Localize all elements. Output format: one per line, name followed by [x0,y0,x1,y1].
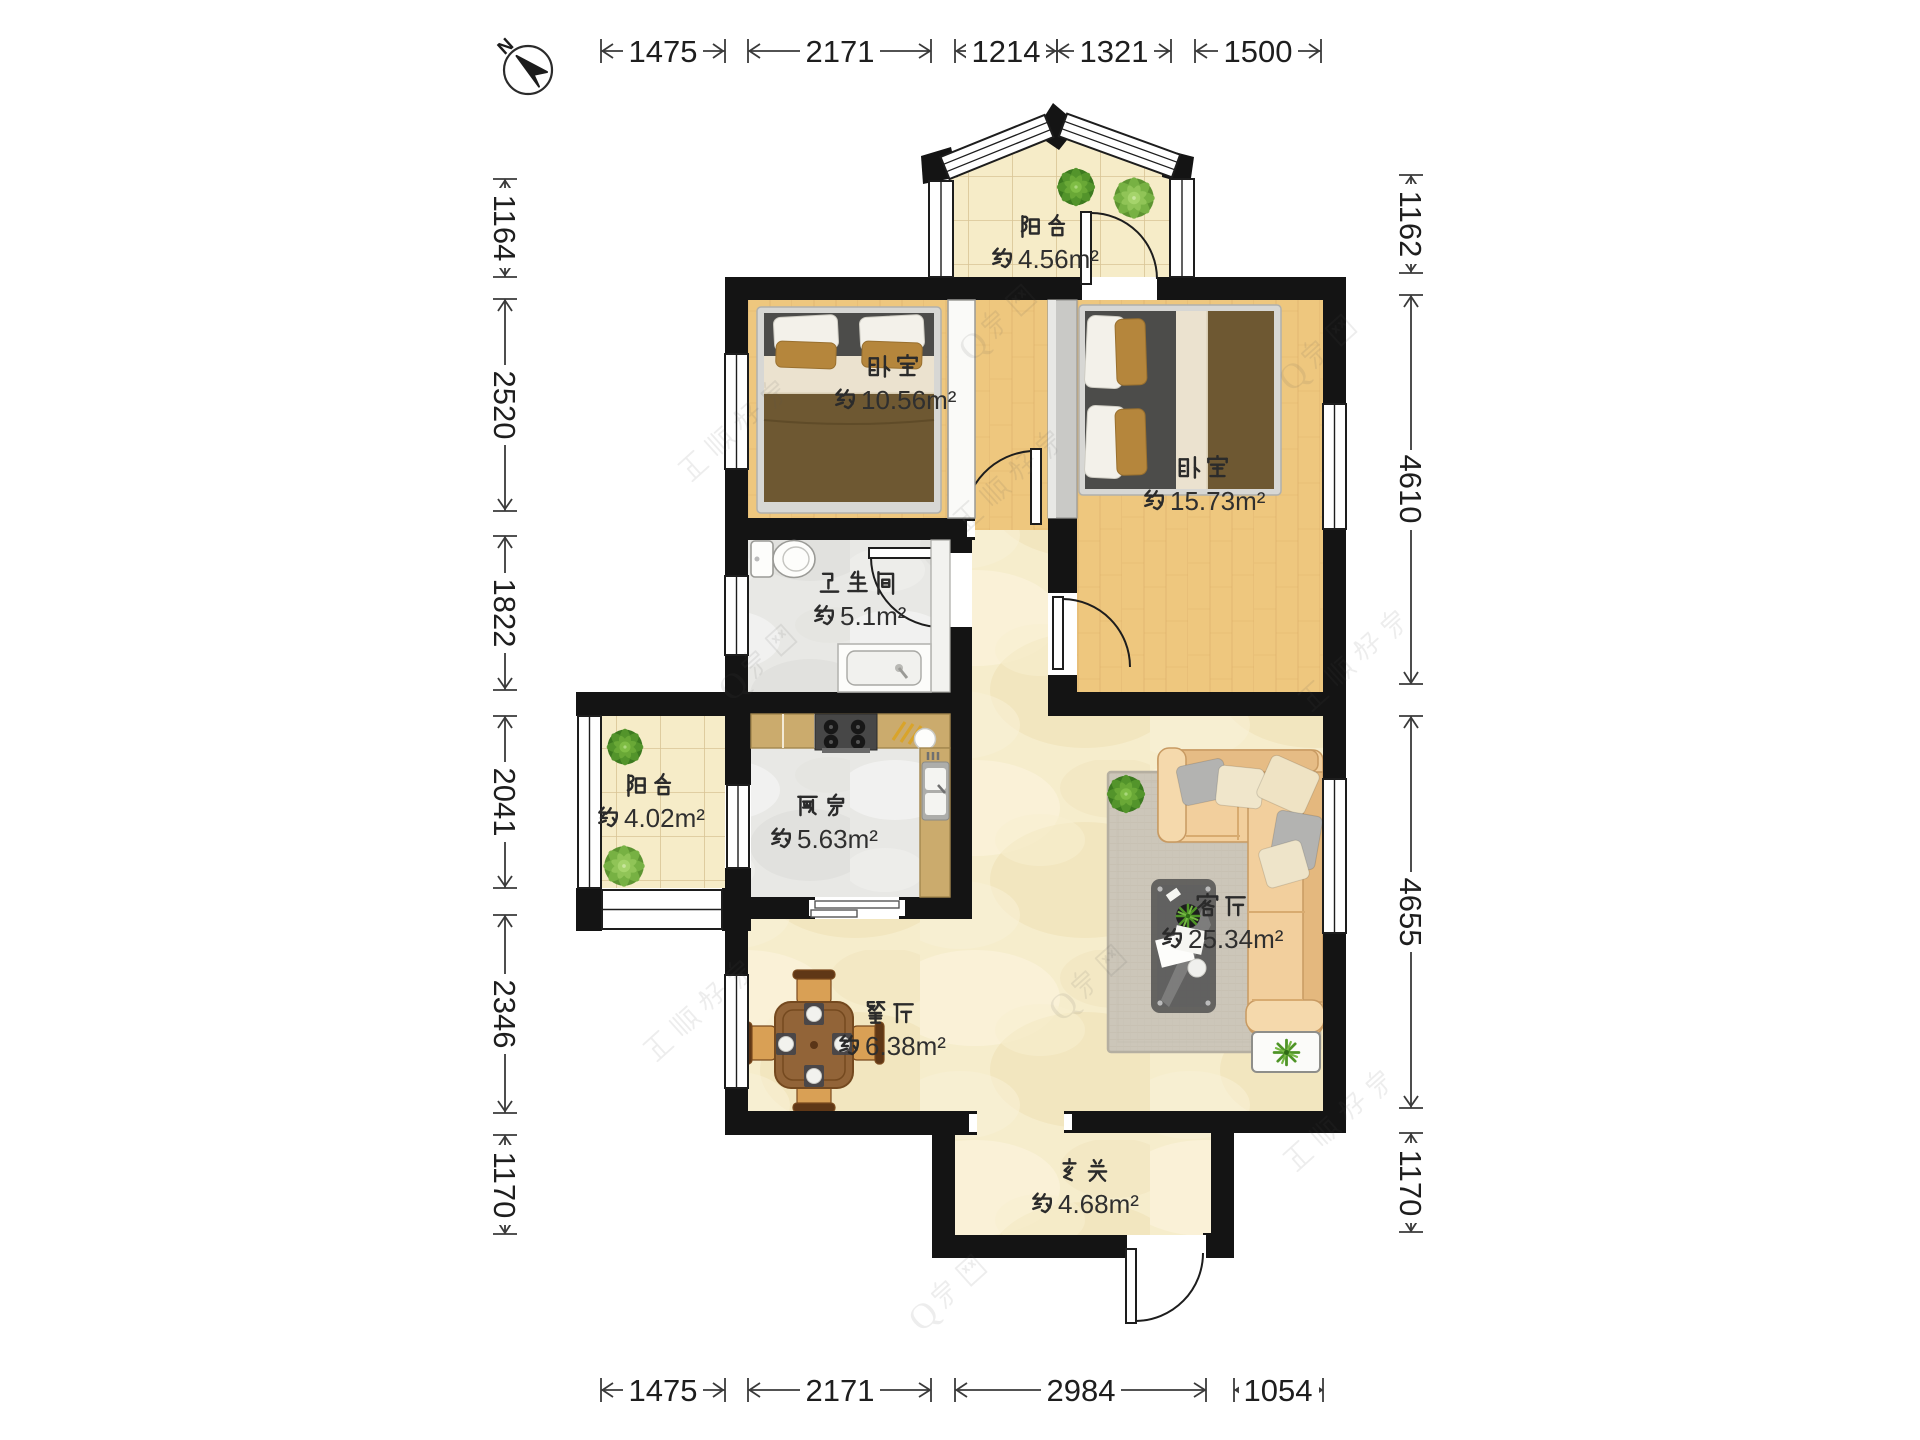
svg-text:4.02m²: 4.02m² [624,803,705,833]
svg-text:10.56m²: 10.56m² [861,385,957,415]
svg-text:1162: 1162 [1393,191,1428,258]
svg-text:1170: 1170 [1393,1150,1428,1217]
svg-text:1475: 1475 [629,1373,698,1408]
svg-text:1170: 1170 [487,1152,522,1219]
svg-text:1164: 1164 [487,195,522,262]
svg-text:2171: 2171 [806,34,875,69]
svg-text:4.68m²: 4.68m² [1058,1189,1139,1219]
svg-text:2346: 2346 [487,980,522,1049]
svg-text:1054: 1054 [1244,1373,1313,1408]
svg-text:1321: 1321 [1080,34,1149,69]
svg-text:4610: 4610 [1393,455,1428,524]
svg-text:2171: 2171 [806,1373,875,1408]
svg-text:1822: 1822 [487,579,522,648]
svg-text:5.1m²: 5.1m² [840,601,907,631]
svg-text:2984: 2984 [1047,1373,1116,1408]
svg-text:1475: 1475 [629,34,698,69]
svg-text:2041: 2041 [487,768,522,837]
svg-text:4.56m²: 4.56m² [1018,244,1099,274]
svg-text:15.73m²: 15.73m² [1170,486,1266,516]
svg-text:6.38m²: 6.38m² [865,1031,946,1061]
svg-text:2520: 2520 [487,371,522,440]
svg-text:5.63m²: 5.63m² [797,824,878,854]
svg-text:4655: 4655 [1393,878,1428,947]
svg-text:1500: 1500 [1224,34,1293,69]
svg-text:1214: 1214 [972,34,1041,69]
svg-text:25.34m²: 25.34m² [1188,924,1284,954]
